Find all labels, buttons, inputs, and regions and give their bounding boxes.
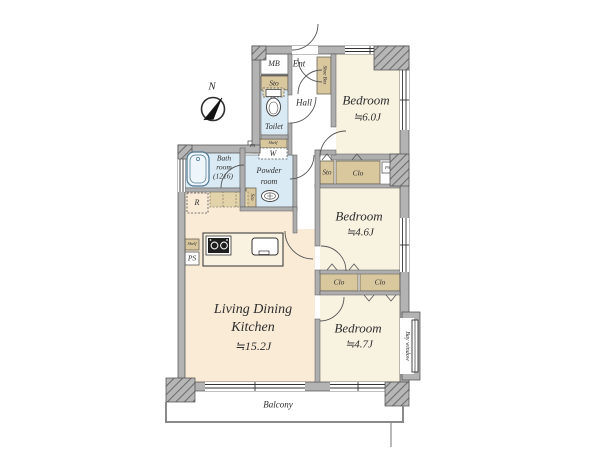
clo-bottom-right-label: Clo: [375, 278, 386, 286]
ps-bedroom-mid-label: PS: [385, 165, 390, 170]
window-bottom-ldk: [205, 382, 305, 391]
wall-bath-bottom: [185, 188, 240, 192]
sto-powder-label: Sto: [248, 193, 254, 200]
mb-label: MB: [268, 60, 280, 68]
sto-entry-label: Sto: [269, 79, 279, 87]
balcony-label: Balcony: [263, 401, 293, 410]
wall-bath-right: [240, 148, 245, 207]
bathroom-label-2: room: [216, 163, 232, 171]
pillar-top-left: [252, 46, 266, 60]
wall-corridor-left: [293, 207, 297, 233]
bathtub-icon: [187, 152, 209, 186]
bedroom-mid-name: Bedroom: [335, 210, 382, 223]
stove-icon: [206, 236, 231, 255]
kitchen-sink-icon: [252, 238, 278, 255]
pillar-bottom-left: [166, 378, 195, 402]
clo-bedroom-mid-label: Clo: [353, 169, 364, 177]
wall-row2-top: [320, 270, 400, 274]
wall-powder-right: [293, 155, 297, 207]
wall-hall-right: [331, 54, 336, 127]
pillar-top-right: [374, 46, 409, 70]
clo-bottom-left-label: Clo: [334, 278, 345, 286]
bedroom-bottom-size: ≒4.7J: [345, 340, 373, 351]
wall-ldk-vert-a: [315, 150, 320, 246]
floor-plan: N MB Ent Sto Hall Toilet Shoe Box Bedroo…: [0, 0, 600, 450]
wall-hall-left-b: [288, 123, 292, 155]
powder-label-2: room: [261, 178, 278, 186]
bedroom-top-name: Bedroom: [342, 94, 389, 107]
wall-bed-top-bottom: [331, 154, 400, 160]
north-arrow: [202, 98, 225, 121]
wall-powder-bottom: [240, 207, 297, 211]
hall-label: Hall: [296, 99, 312, 108]
washer-label: W: [270, 150, 277, 158]
ps-kitchen-label: PS: [188, 254, 196, 262]
pillar-right-mid: [390, 154, 409, 186]
bay-window-label: Bay window: [404, 331, 410, 361]
ldk-name-1: Living Dining: [214, 303, 292, 317]
ldk-size: ≒15.2J: [235, 340, 271, 352]
shelf-laundry-label: Shelf: [269, 141, 278, 146]
ps-bath-label: PS: [250, 143, 255, 148]
pillar-bottom-right: [385, 382, 409, 406]
wall-closet1-bottom: [315, 184, 400, 188]
wall-row2-bottom: [320, 291, 400, 295]
bedroom-bottom-name: Bedroom: [334, 322, 381, 335]
shoe-box-label: Shoe Box: [322, 66, 327, 85]
bathroom-label-3: (1216): [213, 172, 233, 180]
wall-toilet-bottom: [261, 135, 288, 139]
shelf-kitchen-label: Shelf: [188, 242, 197, 247]
sto-bedroom-mid-label: Sto: [323, 170, 332, 177]
wall-hall-left-a: [288, 54, 292, 95]
wall-ldk-vert-b: [315, 270, 320, 295]
powder-label-1: Powder: [257, 167, 282, 175]
north-label: N: [208, 82, 215, 93]
bathroom-label-1: Bath: [217, 154, 231, 162]
refrigerator-label: R: [195, 199, 200, 207]
bedroom-top-size: ≒6.0J: [353, 113, 381, 124]
bedroom-mid-size: ≒4.6J: [346, 228, 374, 239]
wall-left-upper: [252, 46, 260, 153]
window-right-bedroom-top: [400, 70, 409, 130]
entrance-label: Ent: [293, 60, 306, 69]
window-right-bedroom-mid: [400, 218, 409, 272]
powder-sink-icon: [262, 191, 279, 202]
window-bottom-bedroom: [330, 382, 386, 391]
toilet-label: Toilet: [265, 123, 283, 131]
wall-ldk-vert-c: [315, 319, 320, 382]
bay-window: [400, 312, 420, 380]
ldk-name-2: Kitchen: [231, 321, 275, 335]
